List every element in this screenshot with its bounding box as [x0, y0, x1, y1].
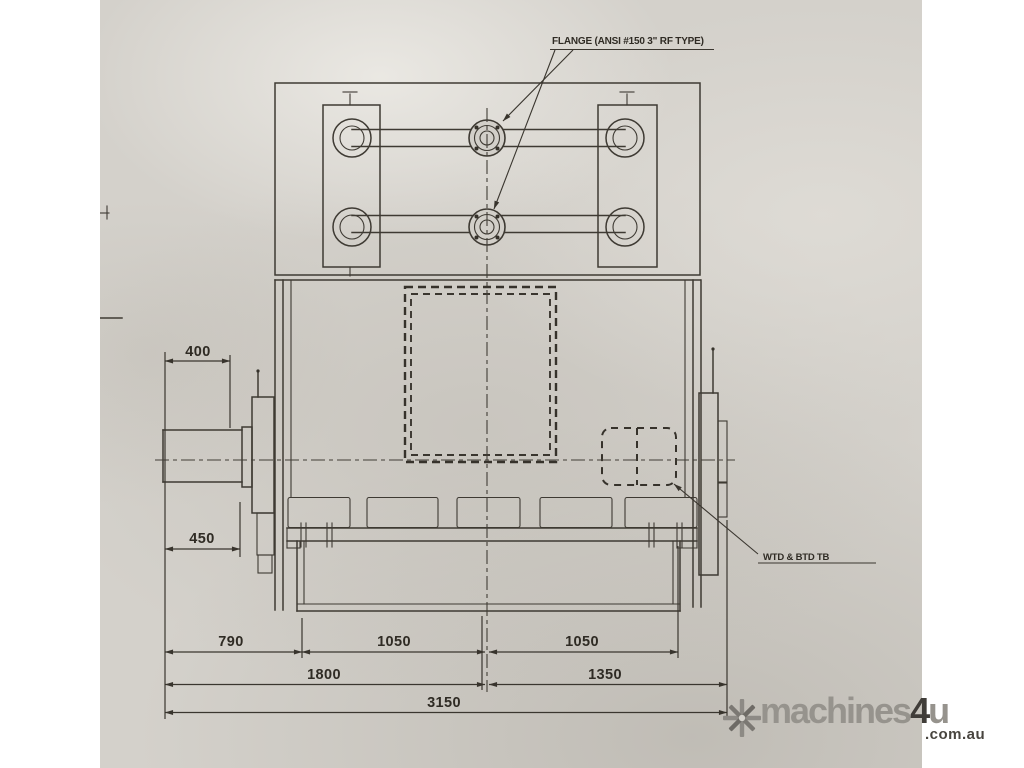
drawing-paper-photo: FLANGE (ANSI #150 3" RF TYPE)	[100, 0, 922, 768]
screenshot-root: { "drawing": { "flange_label": "FLANGE (…	[0, 0, 1024, 768]
dim-450: 450	[189, 531, 214, 547]
brand-suffix: u	[928, 690, 948, 731]
bearing-housing-left	[252, 397, 274, 513]
dimensions: 400 450 790 1050 1050 1800 1350 3150	[165, 344, 727, 719]
terminal-callout: WTD & BTD TB	[674, 484, 876, 563]
engineering-drawing: FLANGE (ANSI #150 3" RF TYPE)	[100, 0, 922, 768]
motor-body	[275, 280, 701, 611]
bearing-housing-right	[699, 393, 718, 575]
bearing-right	[699, 347, 727, 575]
paper-edge-marks	[100, 206, 122, 318]
air-opening-inner	[411, 294, 550, 455]
flange-label: FLANGE (ANSI #150 3" RF TYPE)	[552, 36, 704, 47]
lower-frame	[297, 541, 680, 611]
watermark-domain: .com.au	[925, 726, 985, 743]
shaft-end	[163, 369, 274, 573]
dim-1050b: 1050	[565, 634, 599, 650]
flange-callout: FLANGE (ANSI #150 3" RF TYPE)	[494, 36, 714, 209]
foot-pads	[288, 498, 697, 528]
dim-1350: 1350	[588, 667, 622, 683]
dim-1800: 1800	[307, 667, 341, 683]
dim-1050a: 1050	[377, 634, 411, 650]
terminal-label: WTD & BTD TB	[763, 552, 830, 563]
terminal-box	[602, 428, 676, 485]
shaft-collar	[242, 427, 252, 487]
dim-790: 790	[218, 634, 243, 650]
lifting-lug-left	[343, 92, 357, 105]
dim-3150: 3150	[427, 695, 461, 711]
air-opening-outer	[405, 287, 556, 462]
lifting-lug-right	[620, 92, 634, 105]
mounting-rail	[287, 528, 697, 548]
flange-leader-top	[503, 50, 573, 121]
dim-400: 400	[185, 344, 210, 360]
